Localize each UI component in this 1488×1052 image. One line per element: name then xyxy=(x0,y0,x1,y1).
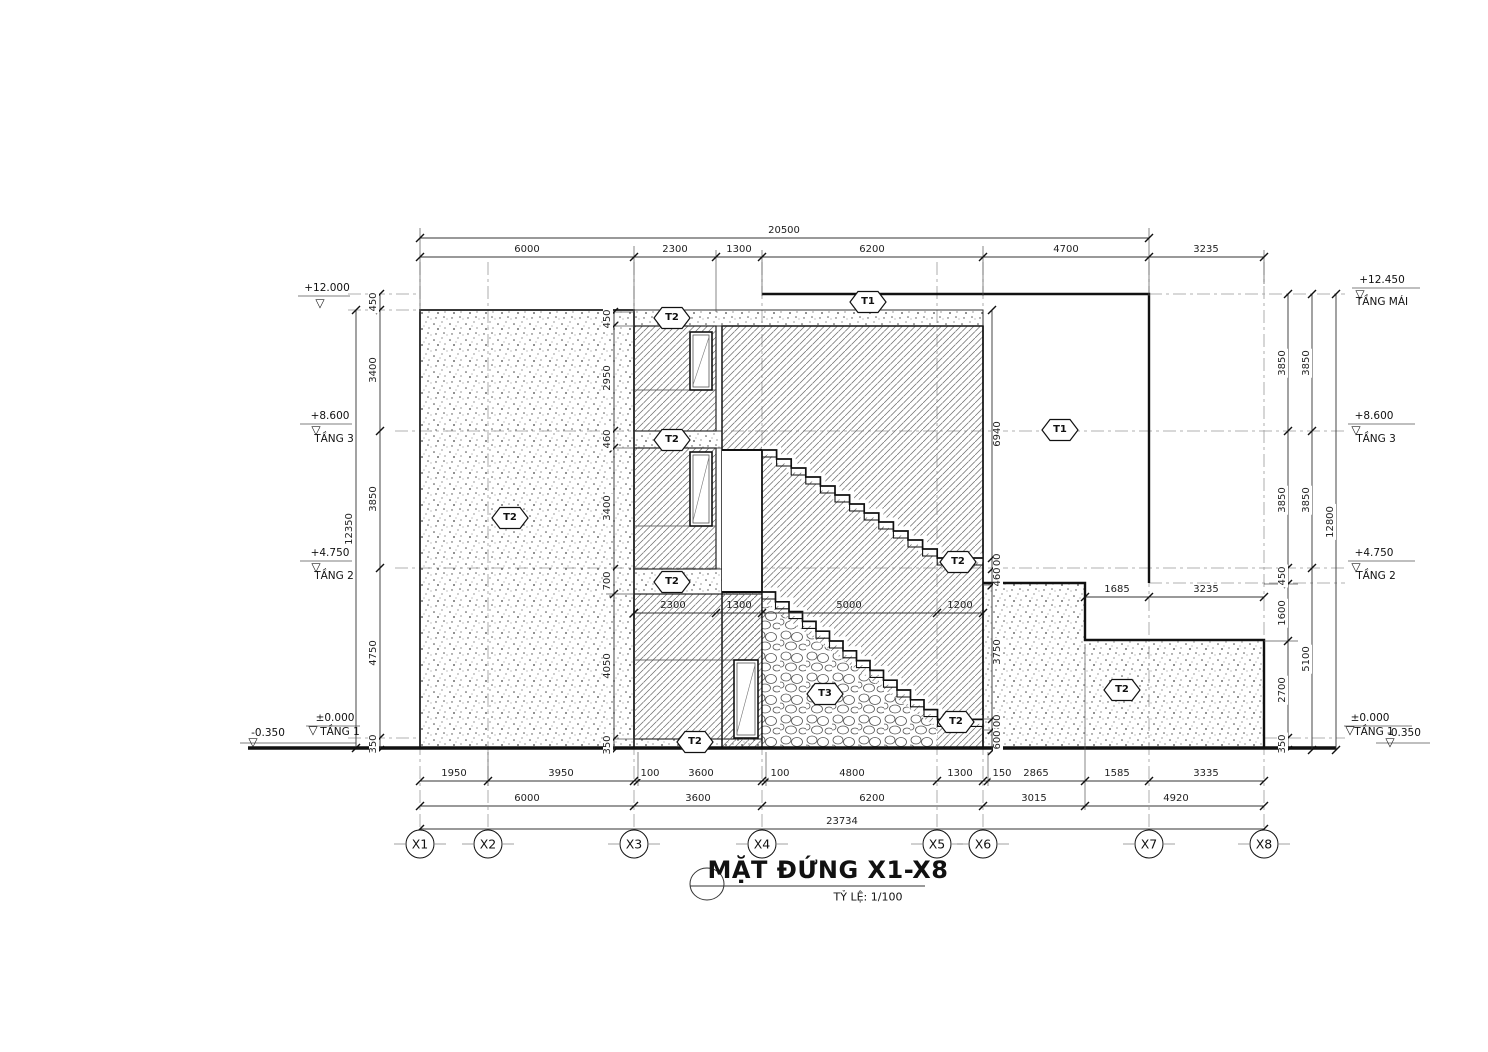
dim-label: 450 xyxy=(603,307,613,330)
dim-label: 3850 xyxy=(1302,348,1312,377)
dim-label: 2950 xyxy=(603,363,613,392)
tag-t2: T2 xyxy=(951,557,965,567)
dim-label: 20500 xyxy=(766,226,802,236)
level-triangle-icon: ▽ xyxy=(315,297,324,309)
dim-label: 600 xyxy=(993,728,1003,751)
dim-label: 3850 xyxy=(1278,485,1288,514)
dim-label: 700 xyxy=(603,569,613,592)
stair-void xyxy=(722,450,762,592)
dim-label: 1200 xyxy=(945,601,974,611)
dim-label: 350 xyxy=(1278,732,1288,755)
level-triangle-icon: ▽ xyxy=(248,736,257,748)
dim-label: 1300 xyxy=(724,601,753,611)
level-value: +12.450 xyxy=(1359,275,1405,286)
dim-label: 6200 xyxy=(857,245,886,255)
dim-label: 1685 xyxy=(1102,585,1131,595)
level-value: ±0.000 xyxy=(1351,713,1390,724)
level-name: TẦNG 3 xyxy=(314,434,354,445)
grid-label: X8 xyxy=(1256,837,1273,852)
level-triangle-icon: ▽ xyxy=(1385,736,1394,748)
elevation-drawing xyxy=(0,0,1488,1052)
dim-label: 460 xyxy=(993,565,1003,588)
elevation-sheet: 20500 6000 2300 1300 6200 4700 3235 1950… xyxy=(0,0,1488,1052)
dim-label: 3600 xyxy=(686,769,715,779)
grid-bubble-x8: X8 xyxy=(1250,830,1279,859)
dim-label: 2700 xyxy=(1278,675,1288,704)
tag-t2: T2 xyxy=(503,513,517,523)
dim-label: 3750 xyxy=(993,637,1003,666)
dim-label: 450 xyxy=(369,290,379,313)
dim-label: 2865 xyxy=(1021,769,1050,779)
dim-label: 1300 xyxy=(724,245,753,255)
dim-label: 23734 xyxy=(824,817,860,827)
dim-label: 4050 xyxy=(603,651,613,680)
dim-label: 100 xyxy=(638,769,661,779)
dim-label: 1300 xyxy=(945,769,974,779)
level-name: TẦNG 3 xyxy=(1356,434,1396,445)
grid-bubble-x1: X1 xyxy=(406,830,435,859)
dim-label: 4800 xyxy=(837,769,866,779)
grid-label: X5 xyxy=(929,837,946,852)
tag-t2: T2 xyxy=(949,717,963,727)
dim-label: 3235 xyxy=(1191,245,1220,255)
grid-label: X6 xyxy=(975,837,992,852)
drawing-title: MẶT ĐỨNG X1-X8 xyxy=(708,856,949,884)
dim-label: 4750 xyxy=(369,638,379,667)
dim-label: 6000 xyxy=(512,794,541,804)
grid-bubble-x2: X2 xyxy=(474,830,503,859)
dim-label: 3950 xyxy=(546,769,575,779)
dim-label: 3600 xyxy=(683,794,712,804)
dim-label: 3400 xyxy=(603,493,613,522)
level-value: +4.750 xyxy=(1355,548,1394,559)
dim-label: 6000 xyxy=(512,245,541,255)
level-value: +4.750 xyxy=(311,548,350,559)
tag-t2: T2 xyxy=(665,435,679,445)
dim-label: 4700 xyxy=(1051,245,1080,255)
grid-bubble-x3: X3 xyxy=(620,830,649,859)
dim-label: 2300 xyxy=(660,245,689,255)
level-name: TẦNG 2 xyxy=(1356,571,1396,582)
tag-t2: T2 xyxy=(665,313,679,323)
level-triangle-icon: ▽ xyxy=(308,724,317,736)
tag-t2: T2 xyxy=(688,737,702,747)
grid-label: X2 xyxy=(480,837,497,852)
tag-t2: T2 xyxy=(665,577,679,587)
grid-bubble-x4: X4 xyxy=(748,830,777,859)
grid-label: X4 xyxy=(754,837,771,852)
dim-label: 3850 xyxy=(1302,485,1312,514)
dim-label: 460 xyxy=(603,427,613,450)
grid-bubble-x7: X7 xyxy=(1135,830,1164,859)
level-name: TẦNG MÁI xyxy=(1356,297,1408,308)
dim-label: 3235 xyxy=(1191,585,1220,595)
level-name: TẦNG 1 xyxy=(320,727,360,738)
dim-label: 6940 xyxy=(993,419,1003,448)
dim-label: 3400 xyxy=(369,355,379,384)
grid-label: X3 xyxy=(626,837,643,852)
tag-t3: T3 xyxy=(818,689,832,699)
dim-label: 1585 xyxy=(1102,769,1131,779)
dim-label: 12350 xyxy=(345,511,355,547)
dim-label: 5000 xyxy=(834,601,863,611)
dim-label: 4920 xyxy=(1161,794,1190,804)
dim-label: 5100 xyxy=(1302,644,1312,673)
grid-label: X1 xyxy=(412,837,429,852)
dim-label: 1950 xyxy=(439,769,468,779)
dim-label: 150 xyxy=(990,769,1013,779)
dim-label: 6200 xyxy=(857,794,886,804)
tag-t2: T2 xyxy=(1115,685,1129,695)
dim-label: 100 xyxy=(768,769,791,779)
level-name: TẦNG 2 xyxy=(314,571,354,582)
dim-label: 3850 xyxy=(1278,348,1288,377)
dim-label: 3015 xyxy=(1019,794,1048,804)
dim-label: 1600 xyxy=(1278,598,1288,627)
dim-label: 450 xyxy=(1278,564,1288,587)
dim-label: 12800 xyxy=(1326,504,1336,540)
dim-label: 3850 xyxy=(369,484,379,513)
dim-label: 3335 xyxy=(1191,769,1220,779)
level-value: +12.000 xyxy=(304,283,350,294)
tag-t1: T1 xyxy=(1053,425,1067,435)
right-concrete-area xyxy=(983,583,1264,748)
grid-bubble-x6: X6 xyxy=(969,830,998,859)
level-value: +8.600 xyxy=(1355,411,1394,422)
grid-label: X7 xyxy=(1141,837,1158,852)
tag-t1: T1 xyxy=(861,297,875,307)
level-value: ±0.000 xyxy=(316,713,355,724)
dim-label: 350 xyxy=(369,732,379,755)
dim-label: 350 xyxy=(603,733,613,756)
dim-label: 2300 xyxy=(658,601,687,611)
drawing-scale: TỶ LỆ: 1/100 xyxy=(834,891,903,904)
grid-bubble-x5: X5 xyxy=(923,830,952,859)
level-value: +8.600 xyxy=(311,411,350,422)
